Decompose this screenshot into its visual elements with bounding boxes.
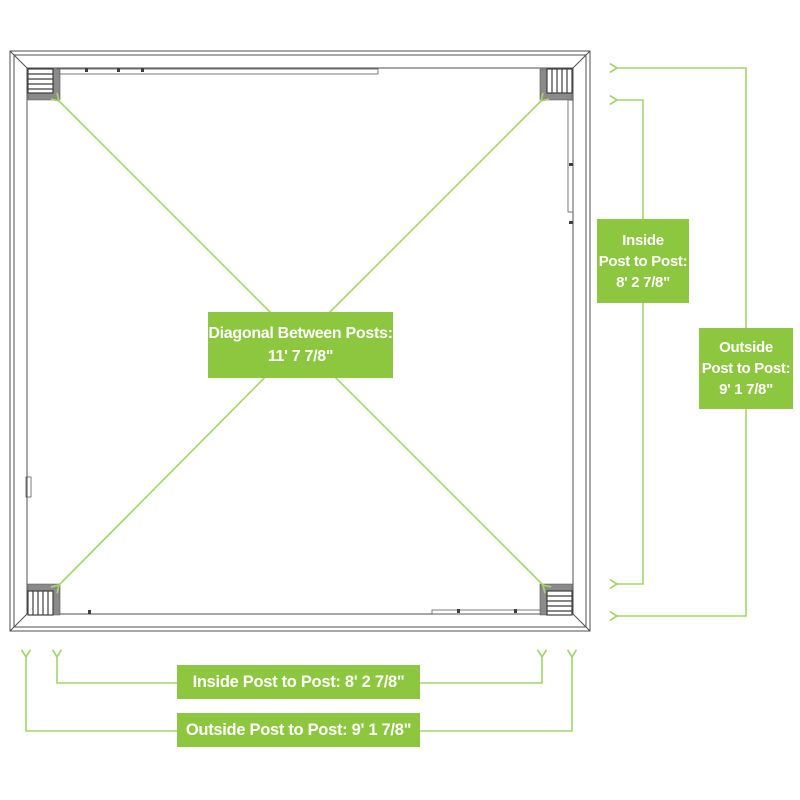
right-outside-dimension-label: Outside Post to Post: 9' 1 7/8" xyxy=(699,328,793,409)
bottom-outside-dimension-label: Outside Post to Post: 9' 1 7/8" xyxy=(177,713,420,747)
right-outside-label-word: Outside xyxy=(719,337,773,358)
right-inside-dimension-label: Inside Post to Post: 8' 2 7/8" xyxy=(597,219,689,303)
right-outside-label-value: 9' 1 7/8" xyxy=(719,379,773,400)
right-inside-measure-line xyxy=(617,100,643,584)
right-inside-label-value: 8' 2 7/8" xyxy=(616,272,670,293)
bottom-inside-label-text: Inside Post to Post: 8' 2 7/8" xyxy=(193,665,405,699)
right-outside-label-text: Post to Post: xyxy=(702,358,791,379)
pergola-plan-diagram: Diagonal Between Posts: 11' 7 7/8" Insid… xyxy=(0,0,800,800)
diagonal-label-value: 11' 7 7/8" xyxy=(268,345,333,368)
right-inside-label-text: Post to Post: xyxy=(599,251,688,272)
corner-post-top-left xyxy=(28,69,60,100)
right-inside-label-word: Inside xyxy=(622,230,664,251)
miter-bottom-right xyxy=(573,614,590,631)
corner-post-bottom-left xyxy=(28,584,60,615)
miter-top-right xyxy=(573,51,590,68)
miter-bottom-left xyxy=(10,614,27,631)
diagonal-label-text: Diagonal Between Posts: xyxy=(208,322,392,345)
miter-top-left xyxy=(10,51,27,68)
bottom-outside-label-text: Outside Post to Post: 9' 1 7/8" xyxy=(186,713,411,747)
diagonal-dimension-label: Diagonal Between Posts: 11' 7 7/8" xyxy=(208,312,393,378)
bottom-inside-dimension-label: Inside Post to Post: 8' 2 7/8" xyxy=(177,665,420,699)
corner-post-top-right xyxy=(540,69,572,100)
corner-post-bottom-right xyxy=(540,584,572,615)
